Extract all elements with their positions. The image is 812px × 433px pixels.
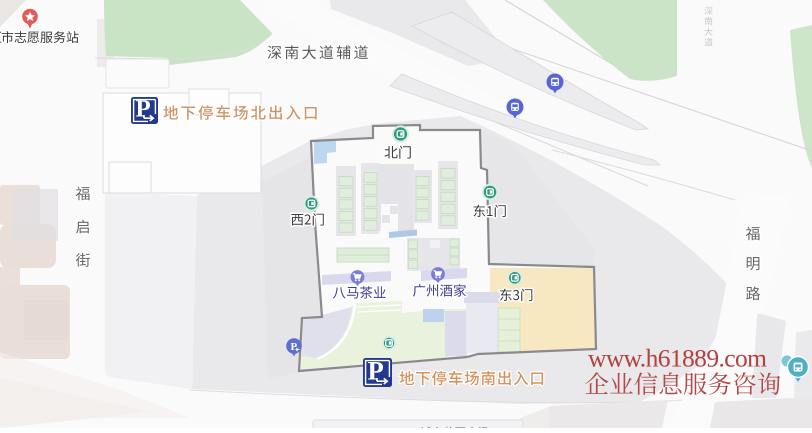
svg-text:P: P	[291, 341, 298, 353]
svg-text:www.h61889.com: www.h61889.com	[588, 344, 767, 373]
